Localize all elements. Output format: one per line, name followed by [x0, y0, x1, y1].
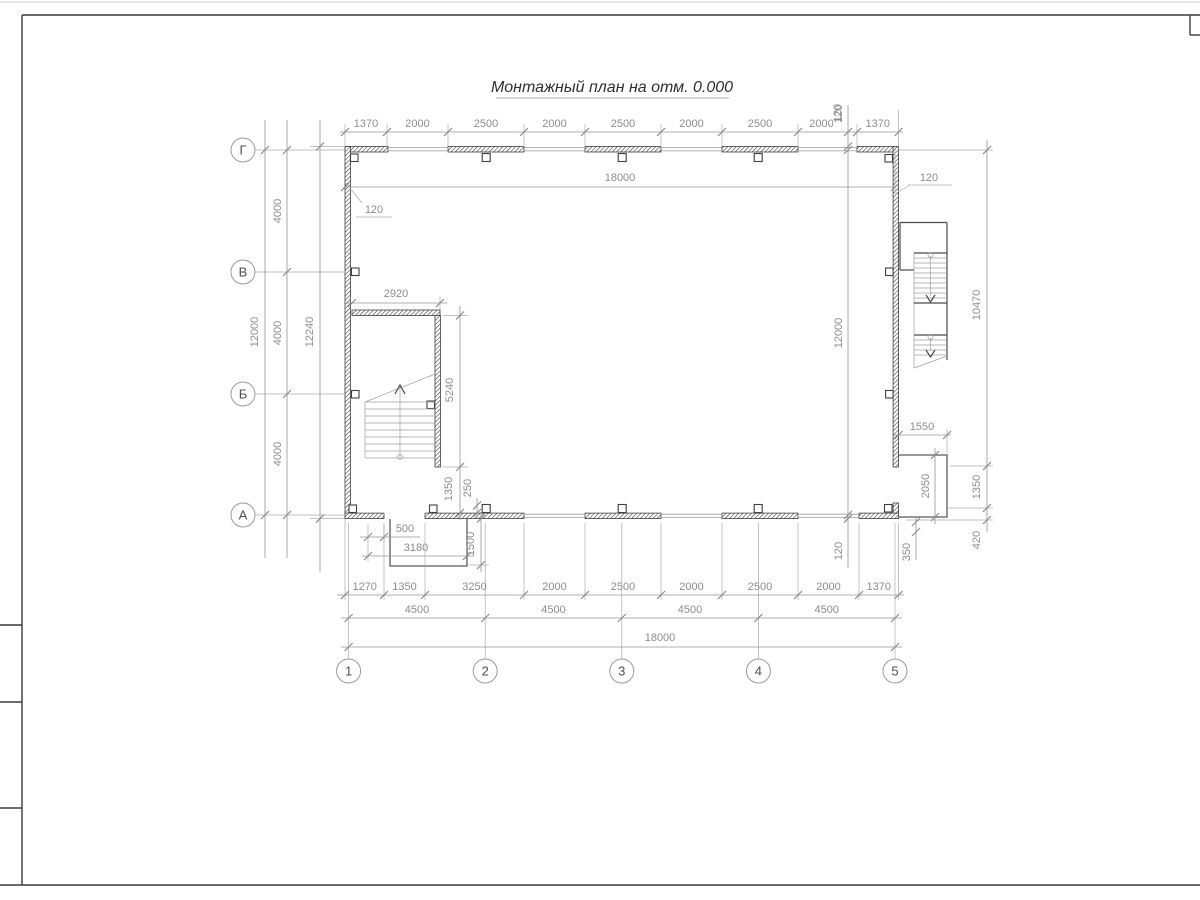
axis-label: 3: [618, 664, 625, 679]
dim-label: 2500: [748, 581, 772, 593]
dim-label: 3180: [404, 542, 428, 554]
connector-icon: [754, 505, 762, 513]
wall-stair-vertical: [435, 316, 441, 468]
dim-label: 2000: [542, 118, 566, 130]
dim-label: 1370: [354, 118, 378, 130]
connector-icon: [351, 154, 359, 162]
stair-left: [365, 374, 435, 460]
drawing-title: Монтажный план на отм. 0.000: [491, 79, 733, 98]
dim-label: 1270: [352, 581, 376, 593]
axis-label: 1: [345, 664, 352, 679]
dim-label: 12000: [833, 318, 845, 349]
dim-label: 1550: [910, 421, 934, 433]
stair-down-arrow-icon: [926, 350, 935, 357]
axis-label: В: [239, 265, 248, 280]
axis-label: А: [239, 508, 248, 523]
wall-panel: [345, 513, 384, 519]
dim-label: 5240: [444, 378, 456, 402]
wall-stair-horizontal: [352, 310, 440, 316]
dim-label: 500: [396, 523, 414, 535]
dim-label: 1350: [971, 475, 983, 499]
connector-icon: [886, 268, 894, 276]
dim-top-chain: 1370 2000 2500 2000 2500 2000 2500 2000 …: [340, 104, 903, 147]
axes-bottom: 1 2 3 4 5: [337, 659, 907, 683]
dim-label: 2000: [405, 118, 429, 130]
dim-label: 2000: [679, 118, 703, 130]
connector-icon: [352, 268, 360, 276]
dim-left-side: 12000 4000 4000 4000 12240 Г В Б А: [231, 120, 345, 572]
dim-label: 2050: [920, 474, 932, 498]
connector-icon: [482, 505, 490, 513]
wall-left: [345, 147, 351, 519]
dim-right-outer: 10470 1350 420 1550 2050 350: [894, 140, 993, 561]
walls: [345, 147, 899, 519]
dim-label: 120: [365, 204, 383, 216]
dim-label: 120: [920, 172, 938, 184]
dim-left-porch: 500 3180 1500: [360, 512, 489, 572]
floor-plan-drawing: Монтажный план на отм. 0.000: [0, 0, 1200, 900]
dim-label: 2920: [384, 288, 408, 300]
dim-label: 2500: [748, 118, 772, 130]
connector-icon: [430, 505, 438, 513]
dim-label: 350: [901, 543, 913, 561]
connector-icon: [885, 505, 893, 513]
axis-label: Г: [239, 143, 246, 158]
wall-panel: [722, 513, 798, 519]
dim-label: 1500: [465, 532, 477, 556]
connector-icon: [352, 391, 360, 399]
dim-label: 2500: [474, 118, 498, 130]
dim-label: 3250: [462, 581, 486, 593]
dim-label: 120: [833, 105, 845, 123]
dim-label: 4000: [272, 199, 284, 223]
connector-icon: [618, 154, 626, 162]
dim-label: 4000: [272, 321, 284, 345]
dim-label: 2000: [542, 581, 566, 593]
connector-icon: [886, 391, 894, 399]
dim-right-inner: 120 12000 120: [833, 105, 852, 568]
dim-label: 1370: [866, 118, 890, 130]
stair-down-arrow-icon: [926, 295, 935, 302]
connector-icon: [349, 505, 357, 513]
dim-label: 10470: [971, 290, 983, 321]
wall-panel: [857, 147, 899, 153]
dim-label: 2500: [611, 118, 635, 130]
connector-icon: [885, 155, 893, 163]
title-text: Монтажный план на отм. 0.000: [491, 79, 733, 96]
dim-label: 4500: [678, 604, 702, 616]
dim-label: 18000: [605, 172, 636, 184]
connector-icon: [618, 505, 626, 513]
dim-label: 4500: [541, 604, 565, 616]
dim-label: 2000: [679, 581, 703, 593]
axis-label: Б: [239, 387, 248, 402]
wall-panel: [345, 147, 388, 153]
dim-label: 420: [971, 531, 983, 549]
wall-panel: [859, 513, 899, 519]
dim-label: 1370: [867, 581, 891, 593]
dim-label: 250: [462, 479, 474, 497]
dim-label: 1350: [392, 581, 416, 593]
connector-icon: [754, 154, 762, 162]
wall-panel: [448, 147, 524, 153]
dim-bottom-chains: 1270 1350 3250 2000 2500 2000 2500 2000 …: [337, 519, 904, 659]
dim-label: 120: [833, 542, 845, 560]
dim-label: 4000: [272, 442, 284, 466]
dim-label: 12240: [304, 317, 316, 348]
sheet-frame: [0, 2, 1200, 885]
dim-stair: 2920 5240 1350 250: [346, 288, 481, 520]
stair-right: [900, 223, 947, 369]
wall-panel: [722, 147, 798, 153]
dim-label: 4500: [405, 604, 429, 616]
connector-plates: [349, 154, 893, 513]
axis-label: 4: [755, 664, 762, 679]
dim-label: 18000: [645, 632, 676, 644]
dim-inner-width: 18000 120 120: [341, 147, 952, 218]
wall-panel: [585, 513, 661, 519]
dim-label: 4500: [814, 604, 838, 616]
dim-label: 12000: [249, 317, 261, 348]
dim-label: 1350: [443, 477, 455, 501]
connector-icon: [482, 154, 490, 162]
axis-label: 2: [482, 664, 489, 679]
wall-openings-bottom: [524, 514, 859, 517]
dim-label: 2500: [611, 581, 635, 593]
wall-panel: [585, 147, 661, 153]
dim-label: 2000: [816, 581, 840, 593]
dim-label: 2000: [809, 118, 833, 130]
axis-label: 5: [891, 664, 898, 679]
